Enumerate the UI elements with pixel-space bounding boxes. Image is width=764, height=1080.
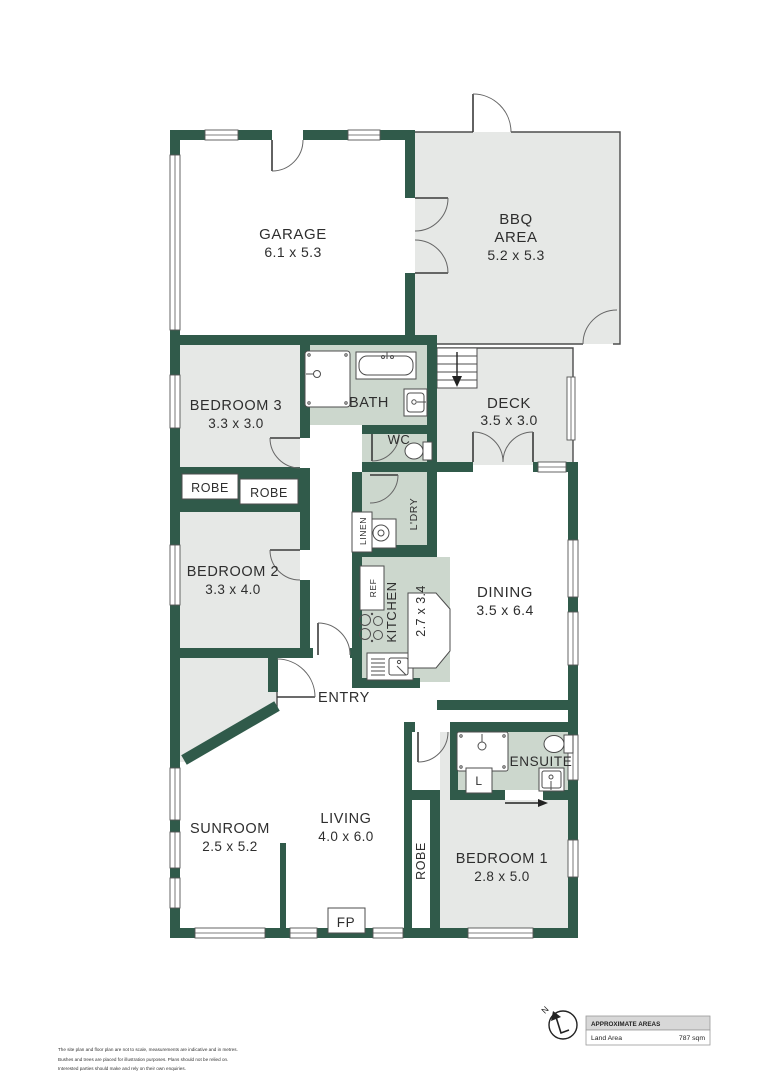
ensuite-vanity-icon bbox=[539, 768, 564, 791]
ensuite-label: ENSUITE bbox=[510, 754, 573, 769]
bath-vanity-icon bbox=[404, 389, 427, 416]
kitchen-dims: 2.7 x 3.4 bbox=[414, 585, 428, 637]
stairs bbox=[437, 348, 477, 388]
bedroom2-floor bbox=[180, 512, 300, 648]
kitchen-label: KITCHEN bbox=[384, 581, 399, 642]
garage-dims: 6.1 x 5.3 bbox=[264, 244, 321, 260]
compass-needle bbox=[556, 1017, 569, 1033]
living-label: LIVING bbox=[320, 811, 371, 827]
areas-table: APPROXIMATE AREAS Land Area 787 sqm bbox=[586, 1016, 710, 1045]
land-area-value: 787 sqm bbox=[679, 1035, 705, 1042]
garage-top-door bbox=[272, 140, 303, 171]
sunroom-label: SUNROOM bbox=[190, 821, 270, 837]
deck-label: DECK bbox=[487, 395, 531, 412]
ensuite-shower-icon bbox=[457, 732, 508, 771]
floor-plan: GARAGE 6.1 x 5.3 BBQ AREA 5.2 x 5.3 DECK… bbox=[0, 0, 764, 1080]
entry-label: ENTRY bbox=[318, 690, 370, 706]
bbq-top-door bbox=[473, 94, 511, 132]
land-area-label: Land Area bbox=[591, 1035, 622, 1042]
wc-label: WC bbox=[388, 432, 411, 447]
disclaimer-line-1: The site plan and floor plan are not to … bbox=[58, 1047, 238, 1052]
compass-north-label: N bbox=[539, 1004, 550, 1015]
bedroom1-dims: 2.8 x 5.0 bbox=[474, 869, 529, 884]
bedroom1-label: BEDROOM 1 bbox=[456, 851, 548, 867]
living-dims: 4.0 x 6.0 bbox=[318, 829, 373, 844]
ensuite-linen-label: L bbox=[475, 774, 482, 788]
dining-dims: 3.5 x 6.4 bbox=[476, 602, 533, 618]
footer: The site plan and floor plan are not to … bbox=[58, 1004, 710, 1071]
areas-table-title: APPROXIMATE AREAS bbox=[591, 1021, 660, 1028]
robe-bed1-label: ROBE bbox=[414, 842, 428, 880]
ensuite-toilet-icon bbox=[544, 735, 573, 753]
kitchen-sink-icon bbox=[367, 653, 413, 680]
fireplace-label: FP bbox=[337, 915, 355, 930]
bedroom3-dims: 3.3 x 3.0 bbox=[208, 416, 263, 431]
robe-bed3-label: ROBE bbox=[191, 481, 229, 495]
floor-fills bbox=[176, 132, 620, 928]
linen-label: LINEN bbox=[358, 517, 368, 545]
dining-label: DINING bbox=[477, 584, 533, 601]
bath-label: BATH bbox=[349, 395, 389, 411]
bedroom3-label: BEDROOM 3 bbox=[190, 398, 282, 414]
disclaimer-line-3: Interested parties should make and rely … bbox=[58, 1066, 186, 1071]
sunroom-dims: 2.5 x 5.2 bbox=[202, 839, 257, 854]
bbq-area-dims: 5.2 x 5.3 bbox=[487, 247, 544, 263]
bbq-area-label-line1: BBQ bbox=[499, 211, 532, 228]
garage-label: GARAGE bbox=[259, 226, 327, 243]
bedroom2-dims: 3.3 x 4.0 bbox=[205, 582, 260, 597]
compass: N bbox=[539, 1004, 577, 1039]
disclaimer-line-2: Bushes and trees are placed for illustra… bbox=[58, 1057, 228, 1062]
laundry-label: L'DRY bbox=[408, 498, 420, 531]
front-door bbox=[277, 659, 315, 697]
bedroom2-label: BEDROOM 2 bbox=[187, 564, 279, 580]
bbq-area-label-line2: AREA bbox=[494, 229, 537, 246]
fridge-label: REF bbox=[368, 579, 378, 598]
robe-bed2-label: ROBE bbox=[250, 486, 288, 500]
bathtub-icon bbox=[356, 352, 416, 379]
bath-shower-icon bbox=[305, 351, 350, 407]
deck-dims: 3.5 x 3.0 bbox=[480, 412, 537, 428]
